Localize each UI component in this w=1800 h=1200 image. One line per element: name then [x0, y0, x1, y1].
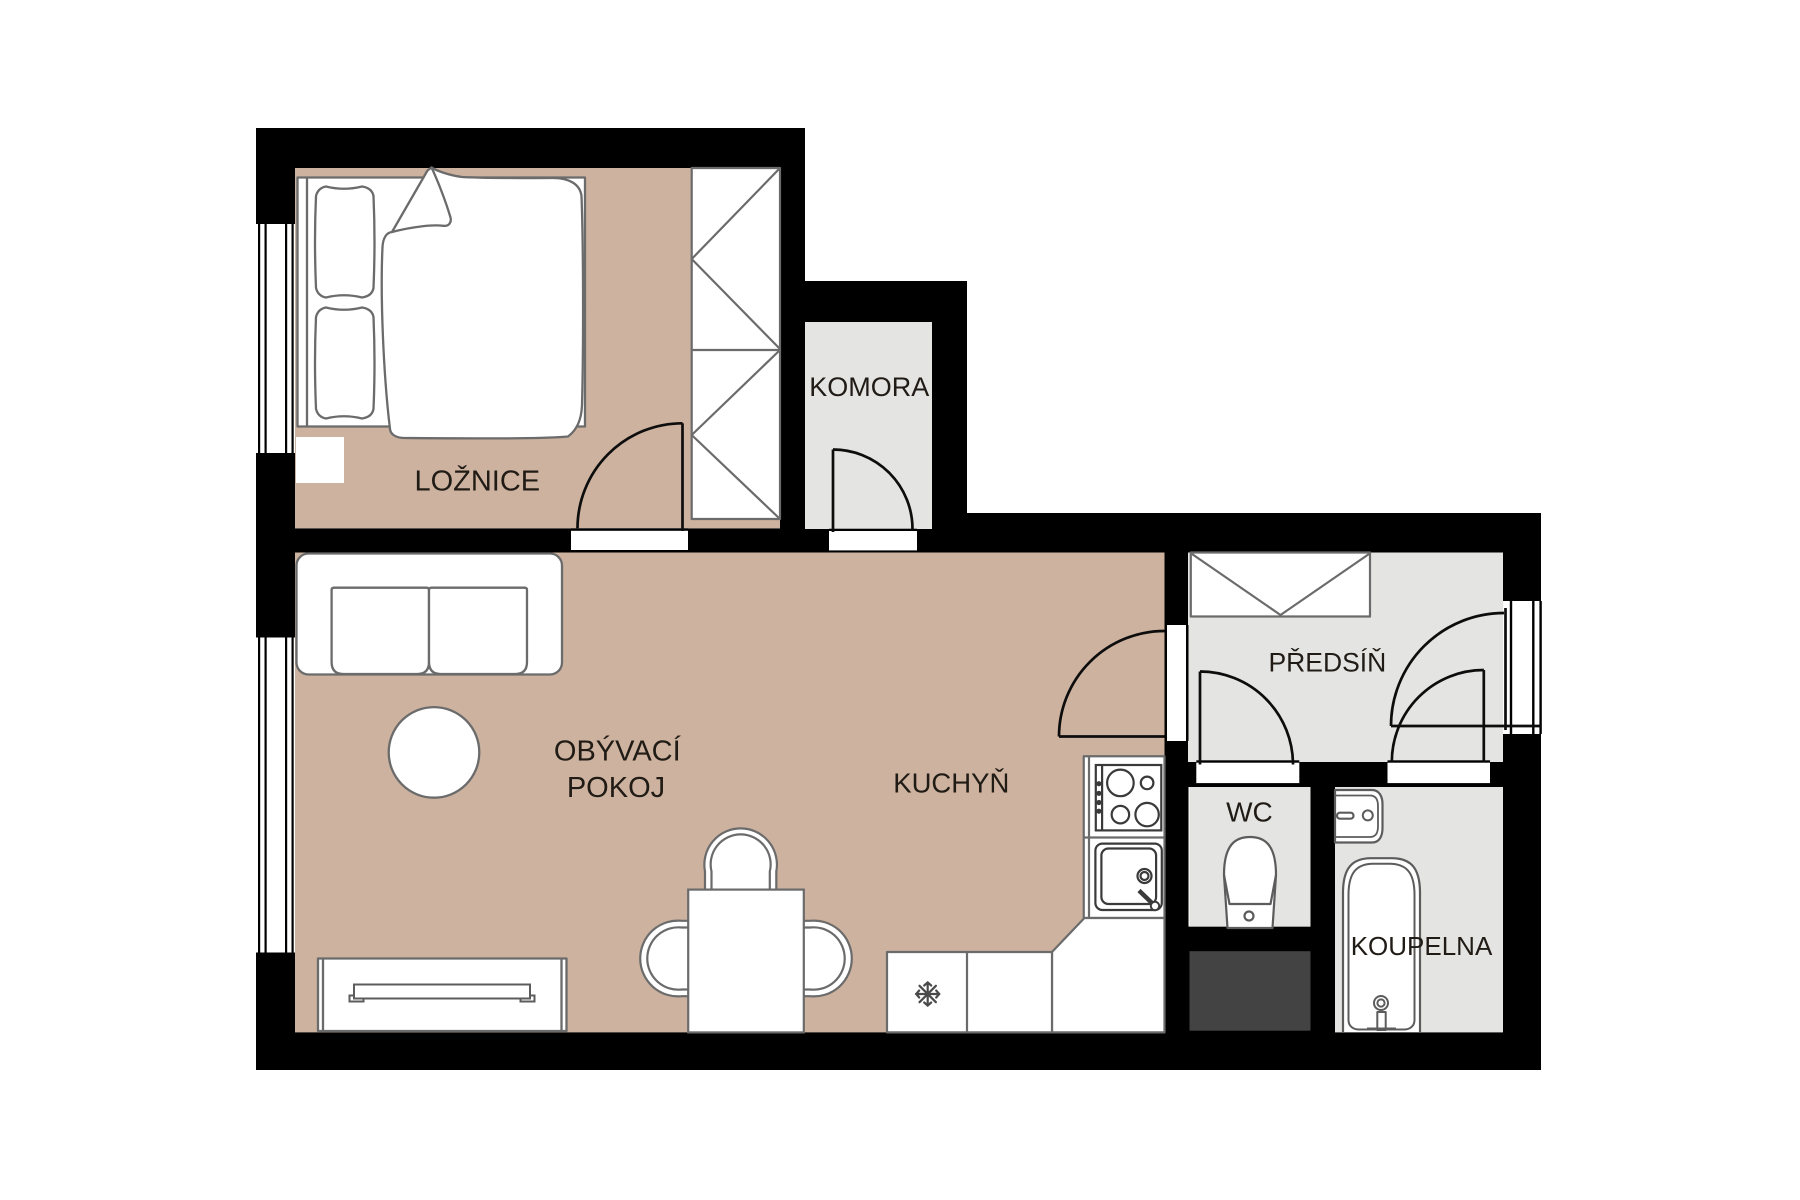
- svg-text:WC: WC: [1226, 796, 1273, 827]
- svg-text:PŘEDSÍŇ: PŘEDSÍŇ: [1268, 648, 1386, 678]
- svg-text:POKOJ: POKOJ: [567, 772, 665, 804]
- svg-text:LOŽNICE: LOŽNICE: [414, 465, 540, 498]
- svg-text:KUCHYŇ: KUCHYŇ: [893, 767, 1009, 798]
- svg-text:KOMORA: KOMORA: [809, 372, 929, 402]
- svg-text:KOUPELNA: KOUPELNA: [1351, 931, 1493, 961]
- svg-text:OBÝVACÍ: OBÝVACÍ: [554, 735, 682, 768]
